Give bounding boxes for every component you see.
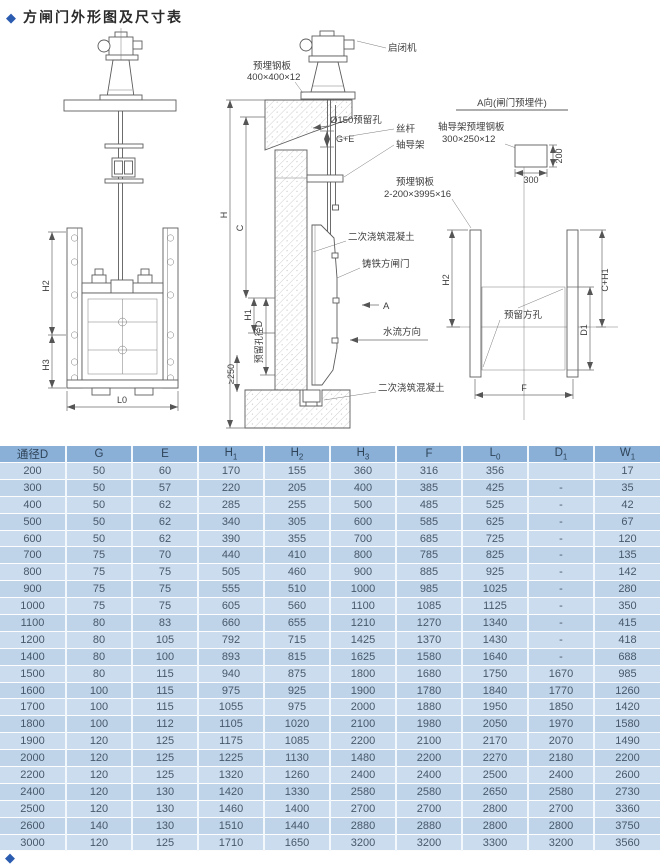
table-cell: 985 (594, 665, 660, 682)
table-cell: 1780 (396, 682, 462, 699)
table-cell: 1430 (462, 631, 528, 648)
table-cell: 1880 (396, 699, 462, 716)
table-cell: - (528, 648, 594, 665)
table-cell: 50 (66, 479, 132, 496)
table-cell: 815 (264, 648, 330, 665)
table-cell: 1125 (462, 598, 528, 615)
table-cell: 1800 (330, 665, 396, 682)
table-cell: 600 (0, 530, 66, 547)
square-hole-label: 预留方孔 (504, 309, 543, 321)
dim-h2-aview: H2 (441, 274, 451, 286)
table-cell: 120 (594, 530, 660, 547)
table-cell: - (528, 513, 594, 530)
table-cell: 2580 (396, 783, 462, 800)
table-cell: 1580 (396, 648, 462, 665)
table-cell: 120 (66, 733, 132, 750)
table-cell: 1480 (330, 750, 396, 767)
table-cell: 80 (66, 615, 132, 632)
table-cell: 50 (66, 530, 132, 547)
table-cell: 125 (132, 750, 198, 767)
table-cell: 75 (132, 564, 198, 581)
table-cell: 100 (66, 699, 132, 716)
table-cell: 700 (330, 530, 396, 547)
column-header: W1 (594, 446, 660, 463)
table-cell: 1330 (264, 783, 330, 800)
dim-h2-front: H2 (41, 280, 51, 292)
table-cell: 120 (66, 834, 132, 851)
table-cell: 1175 (198, 733, 264, 750)
table-cell: 893 (198, 648, 264, 665)
table-cell: 170 (198, 463, 264, 480)
table-cell: 505 (198, 564, 264, 581)
table-cell: 655 (264, 615, 330, 632)
cast-iron-gate-label: 铸铁方闸门 (362, 258, 410, 270)
table-cell: 2400 (528, 767, 594, 784)
table-cell: - (528, 479, 594, 496)
front-view: H2 H3 L0 (41, 28, 178, 411)
table-cell: 125 (132, 767, 198, 784)
table-row: 26001401301510144028802880280028003750 (0, 817, 660, 834)
table-cell: 115 (132, 682, 198, 699)
table-cell: 1750 (462, 665, 528, 682)
table-row: 200506017015536031635617 (0, 463, 660, 480)
table-cell: 75 (132, 598, 198, 615)
table-cell: 1900 (0, 733, 66, 750)
table-row: 3005057220205400385425-35 (0, 479, 660, 496)
hoist-section (300, 31, 354, 62)
table-cell: 510 (264, 581, 330, 598)
table-cell: 3200 (528, 834, 594, 851)
table-cell: 900 (330, 564, 396, 581)
gate-bottom-flange (67, 380, 178, 388)
table-cell: 792 (198, 631, 264, 648)
table-cell: 220 (198, 479, 264, 496)
table-cell: 2170 (462, 733, 528, 750)
table-cell: 2000 (0, 750, 66, 767)
table-cell: 2580 (528, 783, 594, 800)
column-header: G (66, 446, 132, 463)
table-cell: - (528, 564, 594, 581)
table-cell: - (528, 581, 594, 598)
table-cell: 825 (462, 547, 528, 564)
table-cell: 440 (198, 547, 264, 564)
table-cell: 3200 (396, 834, 462, 851)
table-cell: 75 (132, 581, 198, 598)
pedestal-flange (100, 95, 142, 100)
table-cell: 2730 (594, 783, 660, 800)
table-cell: 100 (132, 648, 198, 665)
table-cell: 400 (330, 479, 396, 496)
table-cell: 2200 (396, 750, 462, 767)
table-cell: 100 (66, 682, 132, 699)
dimension-table: 通径DGEH1H2H3FL0D1W1 200506017015536031635… (0, 446, 660, 851)
table-cell: 35 (594, 479, 660, 496)
table-row: 120080105792715142513701430-418 (0, 631, 660, 648)
screw-rod-label: 丝杆 (396, 123, 416, 135)
table-cell: 1400 (264, 800, 330, 817)
table-cell: 2050 (462, 716, 528, 733)
table-cell: 1100 (330, 598, 396, 615)
table-cell: - (528, 598, 594, 615)
table-cell: 1980 (396, 716, 462, 733)
table-cell: 3360 (594, 800, 660, 817)
table-cell: 385 (396, 479, 462, 496)
flow-direction-label: 水流方向 (383, 326, 421, 338)
table-cell: 2100 (396, 733, 462, 750)
table-cell: 50 (66, 463, 132, 480)
guide-plate-size: 300×250×12 (442, 134, 495, 145)
table-cell: 715 (264, 631, 330, 648)
table-cell: 800 (0, 564, 66, 581)
left-embed-plate (470, 230, 481, 377)
dim-h3-front: H3 (41, 359, 51, 371)
guide-plate-rect (515, 145, 547, 167)
gate-sill (303, 390, 320, 402)
table-cell: 3750 (594, 817, 660, 834)
wall-embed-plate-label: 预埋钢板 (396, 176, 435, 188)
table-row: 10007575605560110010851125-350 (0, 598, 660, 615)
table-row: 25001201301460140027002700280027003360 (0, 800, 660, 817)
section-view: 启闭机 预埋钢板 400×400×12 Ø150预留孔 G+E 丝杆 轴导架 二… (219, 31, 445, 428)
dim-c: C (235, 224, 245, 231)
table-cell: 360 (330, 463, 396, 480)
table-row: 7007570440410800785825-135 (0, 547, 660, 564)
table-body: 2005060170155360316356173005057220205400… (0, 463, 660, 851)
table-cell: 115 (132, 699, 198, 716)
guide-bar-upper (105, 144, 143, 148)
table-cell: 62 (132, 530, 198, 547)
table-cell: 500 (330, 496, 396, 513)
table-cell: 1000 (0, 598, 66, 615)
table-cell: 1085 (264, 733, 330, 750)
table-cell: 1700 (0, 699, 66, 716)
table-cell: 900 (0, 581, 66, 598)
table-cell: 2270 (462, 750, 528, 767)
table-cell: 350 (594, 598, 660, 615)
table-cell: 1130 (264, 750, 330, 767)
table-row: 1700100115105597520001880195018501420 (0, 699, 660, 716)
table-cell: 1510 (198, 817, 264, 834)
table-cell: 142 (594, 564, 660, 581)
table-cell: 688 (594, 648, 660, 665)
table-row: 5005062340305600585625-67 (0, 513, 660, 530)
table-cell: 975 (198, 682, 264, 699)
hole-diameter-label: 预留孔径D (253, 320, 264, 363)
table-cell: 418 (594, 631, 660, 648)
table-cell: 410 (264, 547, 330, 564)
table-cell: 525 (462, 496, 528, 513)
hoist-front (98, 28, 142, 62)
table-row: 20001201251225113014802200227021802200 (0, 750, 660, 767)
table-cell: 1210 (330, 615, 396, 632)
hole-150-label: Ø150预留孔 (330, 114, 382, 126)
table-row: 30001201251710165032003200330032003560 (0, 834, 660, 851)
top-embed-plate-label: 预埋钢板 (253, 60, 292, 72)
table-cell: 305 (264, 513, 330, 530)
table-cell: 1440 (264, 817, 330, 834)
table-cell: 585 (396, 513, 462, 530)
table-cell: 340 (198, 513, 264, 530)
table-cell: 135 (594, 547, 660, 564)
platform-beam (64, 100, 176, 111)
table-row: 8007575505460900885925-142 (0, 564, 660, 581)
table-cell: 685 (396, 530, 462, 547)
top-embed-plate (301, 92, 355, 99)
table-cell: 1625 (330, 648, 396, 665)
table-row: 19001201251175108522002100217020701490 (0, 733, 660, 750)
table-cell: 800 (330, 547, 396, 564)
section-mark-label: A (383, 301, 390, 312)
table-cell: 115 (132, 665, 198, 682)
table-cell: 1020 (264, 716, 330, 733)
table-cell: 2600 (0, 817, 66, 834)
table-cell: 130 (132, 783, 198, 800)
table-cell: 2800 (528, 817, 594, 834)
table-cell: 120 (66, 800, 132, 817)
table-cell: 500 (0, 513, 66, 530)
table-cell: 1000 (330, 581, 396, 598)
table-cell: 105 (132, 631, 198, 648)
table-cell: 425 (462, 479, 528, 496)
table-cell: 1055 (198, 699, 264, 716)
table-cell: 975 (264, 699, 330, 716)
table-cell: 62 (132, 496, 198, 513)
table-cell: 1670 (528, 665, 594, 682)
table-cell: 125 (132, 834, 198, 851)
table-cell: 2100 (330, 716, 396, 733)
dim-300: 300 (523, 175, 538, 185)
table-cell: 125 (132, 733, 198, 750)
table-cell: 200 (0, 463, 66, 480)
table-cell: 2650 (462, 783, 528, 800)
table-cell: 2700 (396, 800, 462, 817)
table-cell: 3560 (594, 834, 660, 851)
table-cell: 42 (594, 496, 660, 513)
table-cell: 255 (264, 496, 330, 513)
table-cell: 2000 (330, 699, 396, 716)
table-cell: 2070 (528, 733, 594, 750)
table-cell: 2500 (0, 800, 66, 817)
column-header: H1 (198, 446, 264, 463)
dim-d1: D1 (579, 324, 589, 336)
table-cell: 2700 (528, 800, 594, 817)
table-cell: 985 (396, 581, 462, 598)
secondary-concrete-lower-label: 二次浇筑混凝土 (378, 382, 445, 394)
table-cell: 1600 (0, 682, 66, 699)
guide-bar-lower (105, 179, 143, 183)
table-cell: 3000 (0, 834, 66, 851)
table-cell: 940 (198, 665, 264, 682)
table-cell: 50 (66, 513, 132, 530)
table-cell: 1340 (462, 615, 528, 632)
gate-leaf-front (82, 293, 163, 380)
table-cell: 1460 (198, 800, 264, 817)
table-cell: 50 (66, 496, 132, 513)
table-cell: 1320 (198, 767, 264, 784)
a-view-title: A向(闸门预埋件) (477, 97, 547, 109)
table-cell: 140 (66, 817, 132, 834)
table-cell: 67 (594, 513, 660, 530)
table-cell: 400 (0, 496, 66, 513)
table-cell: 285 (198, 496, 264, 513)
table-cell: 2580 (330, 783, 396, 800)
table-cell: 1680 (396, 665, 462, 682)
table-cell: 80 (66, 648, 132, 665)
table-row: 160010011597592519001780184017701260 (0, 682, 660, 699)
table-cell: 2880 (330, 817, 396, 834)
table-cell: 120 (66, 767, 132, 784)
table-cell: 1580 (594, 716, 660, 733)
table-cell: 700 (0, 547, 66, 564)
table-cell: 600 (330, 513, 396, 530)
table-cell: 60 (132, 463, 198, 480)
table-cell: 875 (264, 665, 330, 682)
table-row: 11008083660655121012701340-415 (0, 615, 660, 632)
pedestal-cone-section (311, 62, 345, 92)
table-cell: 2400 (396, 767, 462, 784)
table-cell: 2180 (528, 750, 594, 767)
table-cell: 280 (594, 581, 660, 598)
table-cell: 1105 (198, 716, 264, 733)
table-cell: 560 (264, 598, 330, 615)
table-cell: 3300 (462, 834, 528, 851)
table-cell: 2800 (462, 800, 528, 817)
column-header: H2 (264, 446, 330, 463)
table-cell: 785 (396, 547, 462, 564)
table-cell: 605 (198, 598, 264, 615)
table-row: 1500801159408751800168017501670985 (0, 665, 660, 682)
table-cell: 1710 (198, 834, 264, 851)
technical-drawing: H2 H3 L0 (0, 28, 660, 439)
table-cell (528, 463, 594, 480)
table-cell: 2700 (330, 800, 396, 817)
table-cell: 130 (132, 817, 198, 834)
column-header: L0 (462, 446, 528, 463)
column-header: D1 (528, 446, 594, 463)
table-cell: - (528, 547, 594, 564)
table-row: 4005062285255500485525-42 (0, 496, 660, 513)
page-title-text: 方闸门外形图及尺寸表 (23, 7, 183, 27)
table-cell: 83 (132, 615, 198, 632)
table-cell: 155 (264, 463, 330, 480)
table-cell: - (528, 615, 594, 632)
table-cell: 625 (462, 513, 528, 530)
table-cell: 1400 (0, 648, 66, 665)
concrete-floor (245, 390, 350, 428)
table-cell: 1900 (330, 682, 396, 699)
table-cell: 2500 (462, 767, 528, 784)
table-cell: 1085 (396, 598, 462, 615)
table-cell: 1260 (264, 767, 330, 784)
table-cell: 1200 (0, 631, 66, 648)
shaft-guide-bracket (307, 175, 343, 182)
table-cell: 1270 (396, 615, 462, 632)
table-cell: 1800 (0, 716, 66, 733)
table-cell: 75 (66, 598, 132, 615)
column-header: F (396, 446, 462, 463)
min-embed-label: ≥250 (226, 364, 236, 384)
table-cell: 725 (462, 530, 528, 547)
column-header: 通径D (0, 446, 66, 463)
table-cell: 485 (396, 496, 462, 513)
table-cell: 130 (132, 800, 198, 817)
table-cell: 75 (66, 564, 132, 581)
table-cell: 390 (198, 530, 264, 547)
table-header-row: 通径DGEH1H2H3FL0D1W1 (0, 446, 660, 463)
top-embed-plate-size: 400×400×12 (247, 72, 300, 83)
table-row: 6005062390355700685725-120 (0, 530, 660, 547)
gate-leaf-section (312, 225, 339, 385)
table-cell: 57 (132, 479, 198, 496)
table-cell: 1370 (396, 631, 462, 648)
table-cell: 80 (66, 631, 132, 648)
dim-l0-front: L0 (117, 395, 127, 405)
table-cell: 2200 (0, 767, 66, 784)
table-cell: 1425 (330, 631, 396, 648)
table-cell: 1970 (528, 716, 594, 733)
table-cell: 2200 (594, 750, 660, 767)
square-hole (482, 287, 565, 370)
table-cell: 885 (396, 564, 462, 581)
table-cell: 120 (66, 783, 132, 800)
table-cell: 1850 (528, 699, 594, 716)
table-cell: 75 (66, 581, 132, 598)
hoist-label: 启闭机 (388, 42, 417, 54)
table-cell: 2400 (0, 783, 66, 800)
table-cell: 2400 (330, 767, 396, 784)
dim-h1: H1 (243, 309, 253, 321)
table-cell: - (528, 496, 594, 513)
table-cell: 1420 (594, 699, 660, 716)
table-cell: 1770 (528, 682, 594, 699)
table-cell: 205 (264, 479, 330, 496)
dim-f: F (521, 383, 527, 393)
secondary-concrete-upper-label: 二次浇筑混凝土 (348, 231, 415, 243)
table-cell: 1025 (462, 581, 528, 598)
table-cell: - (528, 631, 594, 648)
table-row: 18001001121105102021001980205019701580 (0, 716, 660, 733)
table-cell: 1950 (462, 699, 528, 716)
column-header: E (132, 446, 198, 463)
table-cell: 2600 (594, 767, 660, 784)
column-header: H3 (330, 446, 396, 463)
table-cell: 355 (264, 530, 330, 547)
table-cell: 3200 (330, 834, 396, 851)
table-cell: 925 (462, 564, 528, 581)
dim-c-plus-h1: C+H1 (600, 268, 610, 291)
table-cell: 75 (66, 547, 132, 564)
table-row: 140080100893815162515801640-688 (0, 648, 660, 665)
table-cell: 300 (0, 479, 66, 496)
table-cell: 660 (198, 615, 264, 632)
table-row: 900757555551010009851025-280 (0, 581, 660, 598)
guide-plate-label: 轴导架预埋钢板 (438, 121, 505, 133)
shaft-guide-label: 轴导架 (396, 139, 425, 151)
table-cell: 1650 (264, 834, 330, 851)
table-cell: 1640 (462, 648, 528, 665)
table-cell: 112 (132, 716, 198, 733)
table-cell: 1225 (198, 750, 264, 767)
table-cell: 555 (198, 581, 264, 598)
table-cell: 62 (132, 513, 198, 530)
table-cell: 1100 (0, 615, 66, 632)
table-cell: 1490 (594, 733, 660, 750)
table-cell: 100 (66, 716, 132, 733)
table-cell: 1420 (198, 783, 264, 800)
page-title: ◆ 方闸门外形图及尺寸表 (0, 0, 660, 28)
g-plus-e-label: G+E (336, 134, 354, 144)
table-cell: 415 (594, 615, 660, 632)
